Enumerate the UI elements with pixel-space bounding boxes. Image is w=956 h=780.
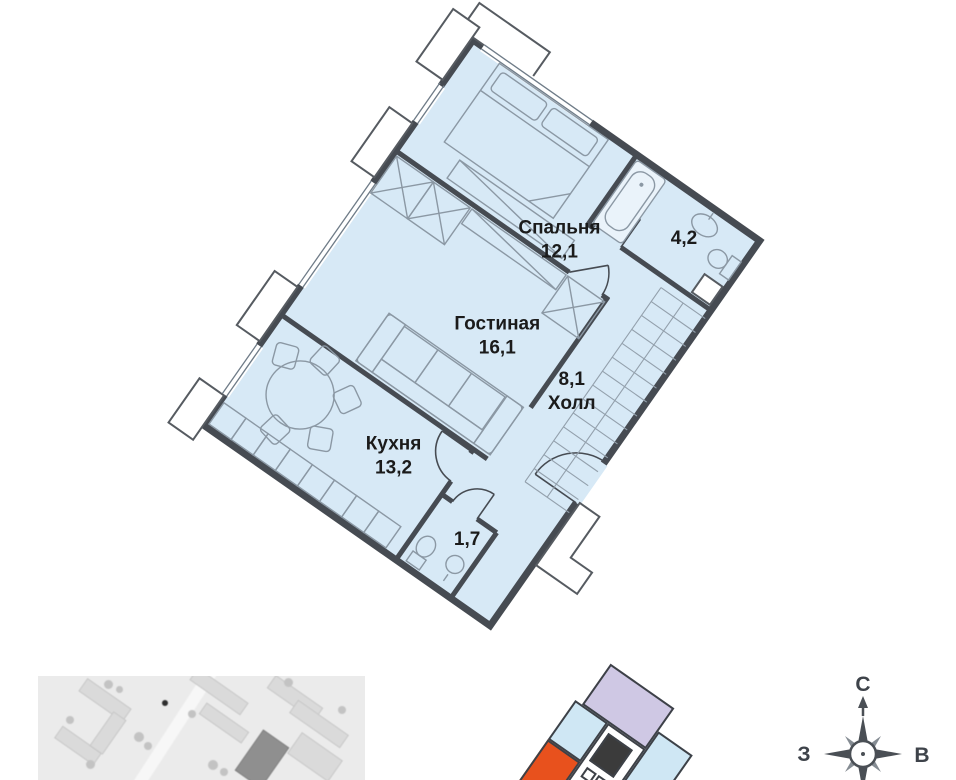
room-label-wc: 1,7 — [454, 528, 480, 552]
compass-north-label: С — [855, 675, 870, 696]
compass-west-label: З — [797, 743, 810, 766]
room-label-bedroom: Спальня 12,1 — [518, 217, 600, 266]
compass-east-label: В — [914, 744, 929, 767]
room-label-bathroom: 4,2 — [671, 227, 697, 251]
room-name: Холл — [548, 392, 596, 416]
room-area: 13,2 — [366, 457, 422, 481]
room-label-kitchen: Кухня 13,2 — [366, 433, 422, 482]
location-map — [38, 676, 365, 780]
apartment-plan: Спальня 12,1 4,2 Гостиная 16,1 8,1 Холл … — [203, 40, 759, 626]
room-area: 8,1 — [548, 368, 596, 392]
room-name: Спальня — [518, 217, 600, 241]
room-label-hall: 8,1 Холл — [548, 368, 596, 417]
room-name: Гостиная — [454, 312, 540, 336]
floor-mini-plan — [506, 659, 710, 780]
room-label-living: Гостиная 16,1 — [454, 312, 540, 361]
room-area: 16,1 — [454, 337, 540, 361]
room-area: 1,7 — [454, 528, 480, 552]
room-area: 4,2 — [671, 227, 697, 251]
floor-plan-page: Спальня 12,1 4,2 Гостиная 16,1 8,1 Холл … — [0, 0, 956, 780]
compass-rose: С В З — [795, 675, 940, 780]
compass-star — [824, 696, 902, 780]
map-marker — [162, 700, 168, 706]
room-name: Кухня — [366, 433, 422, 457]
room-area: 12,1 — [518, 241, 600, 265]
